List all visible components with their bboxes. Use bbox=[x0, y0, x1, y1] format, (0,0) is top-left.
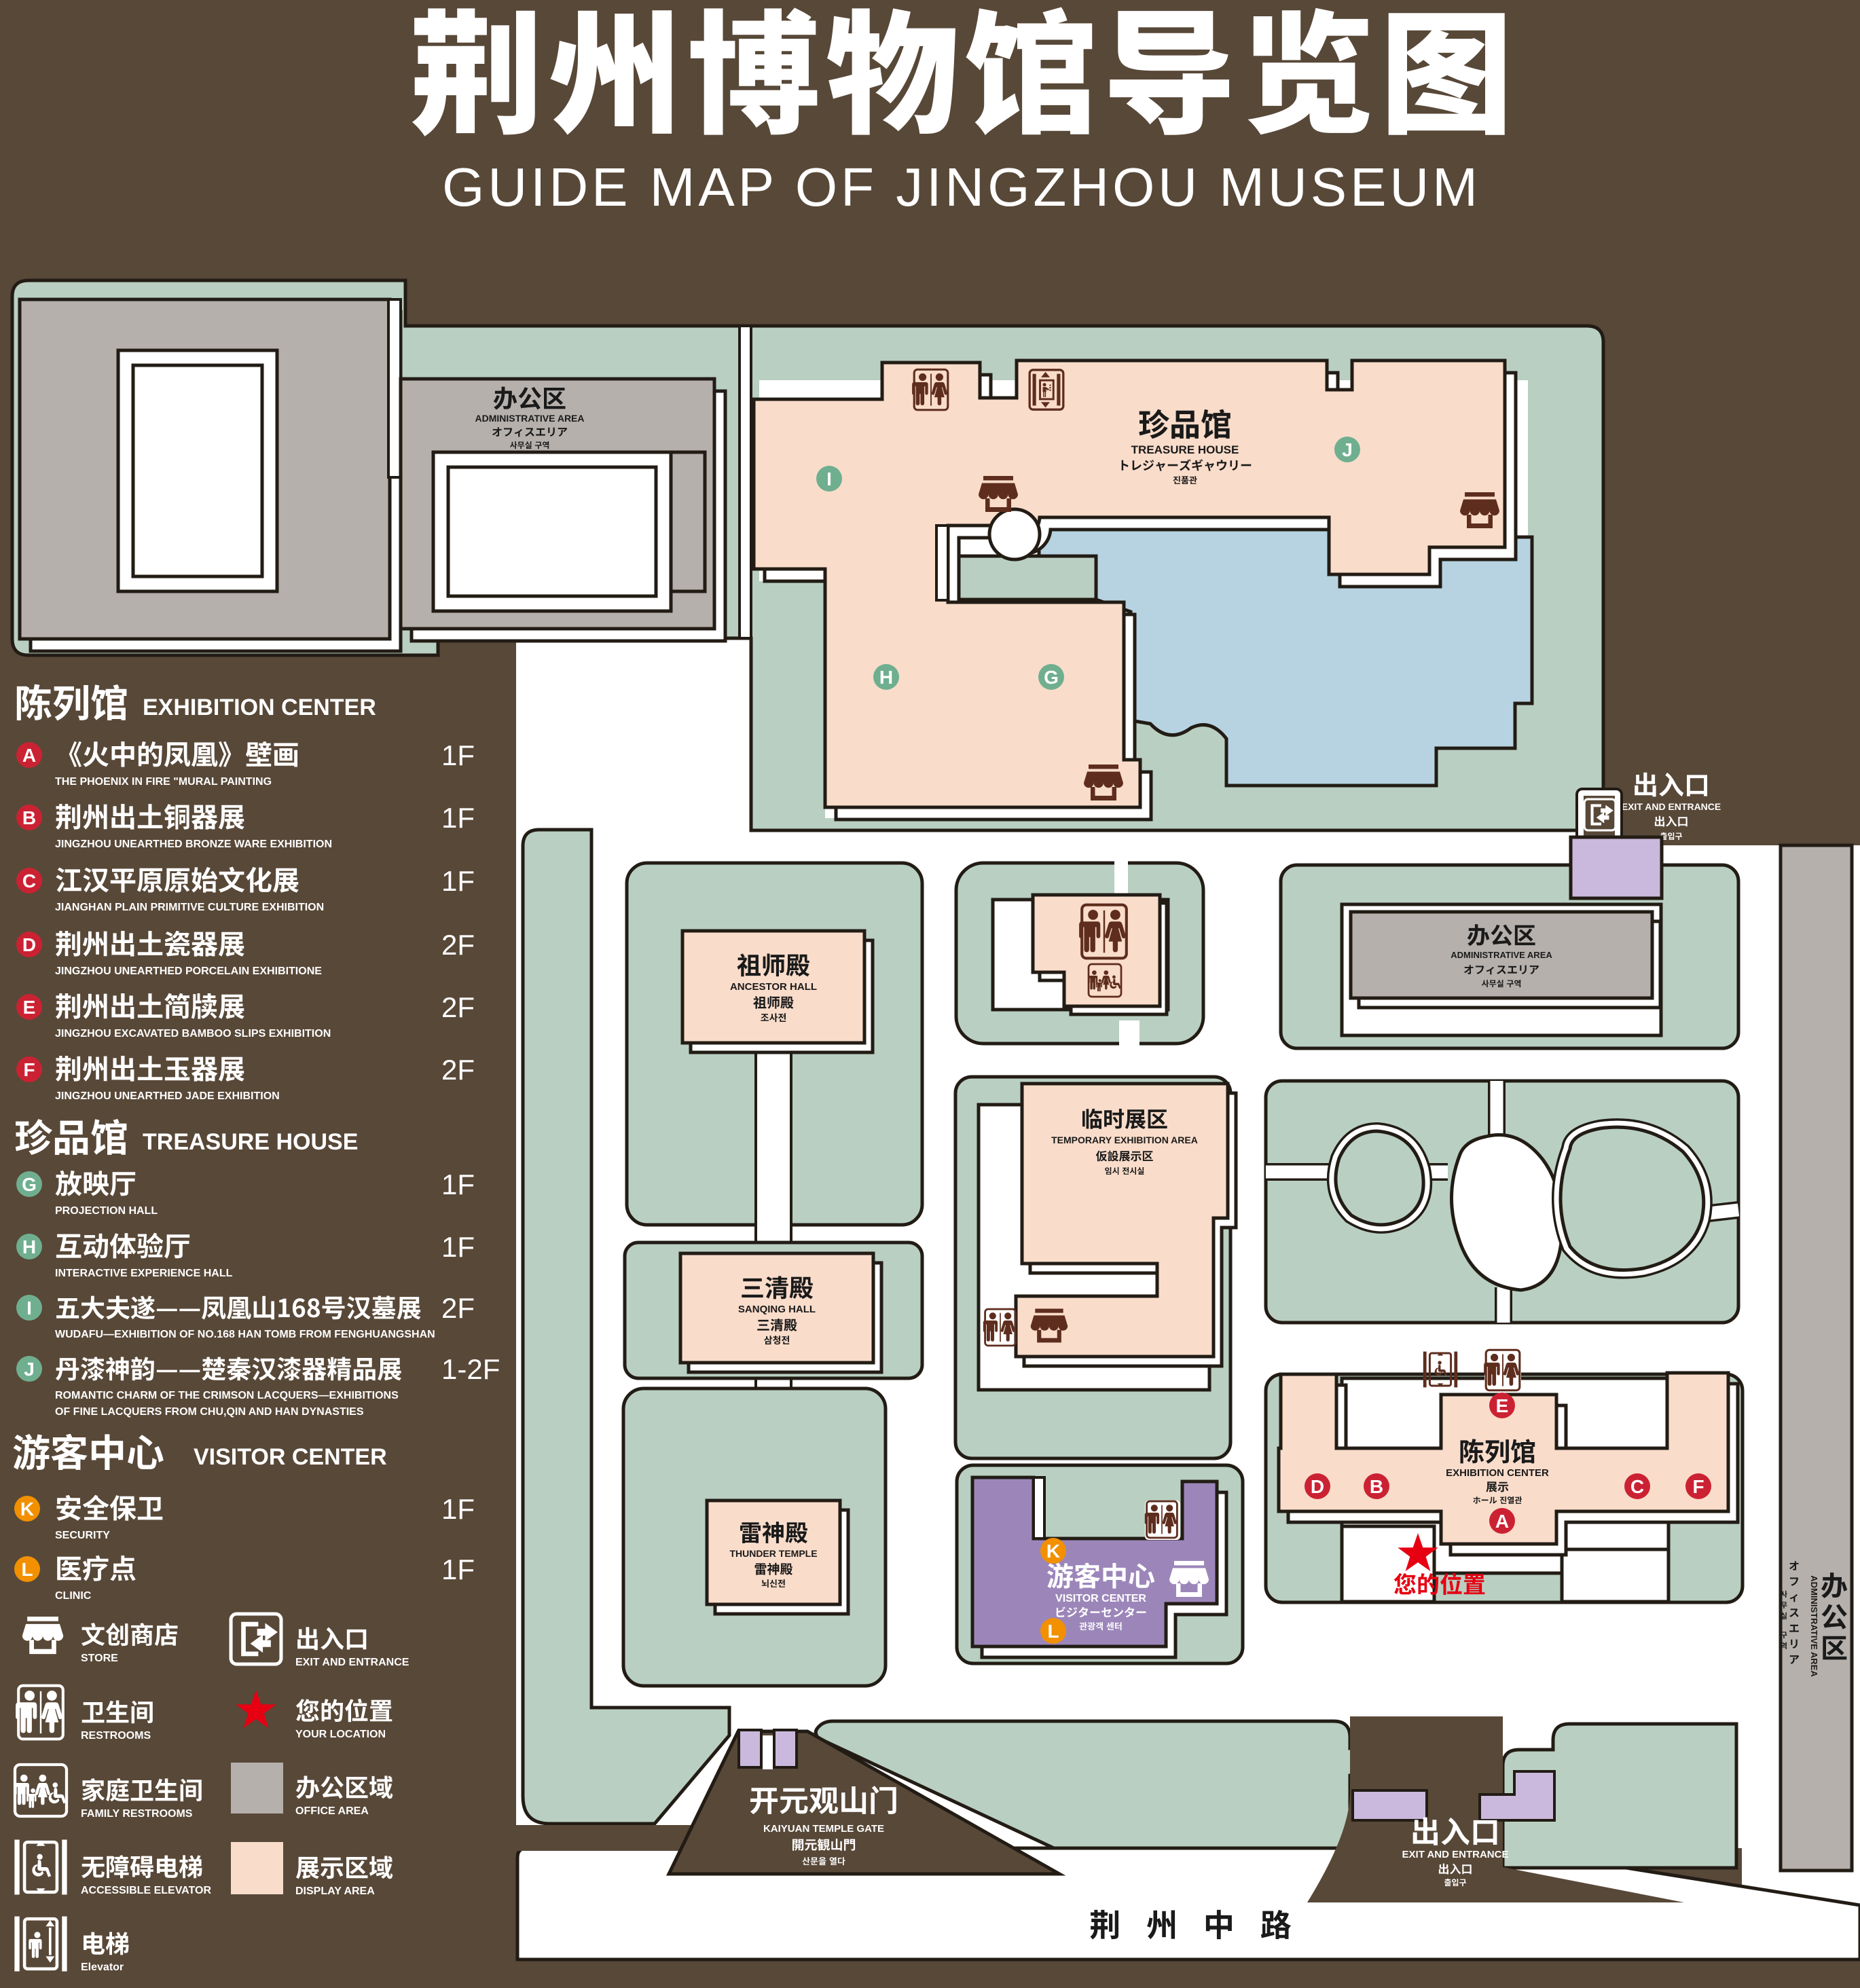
svg-text:1F: 1F bbox=[441, 1168, 475, 1200]
svg-text:TREASURE HOUSE: TREASURE HOUSE bbox=[143, 1129, 358, 1155]
svg-text:STORE: STORE bbox=[81, 1653, 118, 1664]
svg-text:E: E bbox=[23, 997, 36, 1018]
svg-text:GUIDE MAP OF JINGZHOU MUSEUM: GUIDE MAP OF JINGZHOU MUSEUM bbox=[442, 157, 1481, 217]
svg-text:VISITOR CENTER: VISITOR CENTER bbox=[194, 1444, 387, 1470]
svg-text:THE PHOENIX IN FIRE "MURAL PAI: THE PHOENIX IN FIRE "MURAL PAINTING bbox=[55, 776, 272, 788]
svg-text:EXIT AND ENTRANCE: EXIT AND ENTRANCE bbox=[1622, 801, 1721, 812]
svg-text:A: A bbox=[22, 745, 36, 766]
svg-text:F: F bbox=[1692, 1476, 1704, 1497]
svg-text:1F: 1F bbox=[441, 1493, 475, 1525]
svg-text:JINGZHOU UNEARTHED JADE EXHIBI: JINGZHOU UNEARTHED JADE EXHIBITION bbox=[55, 1090, 280, 1102]
svg-text:2F: 2F bbox=[441, 1054, 475, 1086]
svg-text:EXIT AND ENTRANCE: EXIT AND ENTRANCE bbox=[295, 1657, 409, 1668]
svg-text:J: J bbox=[24, 1359, 35, 1380]
svg-text:PROJECTION HALL: PROJECTION HALL bbox=[55, 1205, 158, 1217]
svg-text:L: L bbox=[1047, 1621, 1059, 1642]
svg-text:ROMANTIC CHARM OF THE CRIMSON: ROMANTIC CHARM OF THE CRIMSON LACQUERS—E… bbox=[55, 1390, 399, 1401]
svg-text:I: I bbox=[26, 1297, 32, 1319]
svg-text:ANCESTOR HALL: ANCESTOR HALL bbox=[730, 981, 817, 993]
svg-text:CLINIC: CLINIC bbox=[55, 1590, 92, 1602]
svg-text:1-2F: 1-2F bbox=[441, 1353, 500, 1385]
svg-text:K: K bbox=[1046, 1541, 1060, 1562]
svg-text:JIANGHAN PLAIN PRIMITIVE CULTU: JIANGHAN PLAIN PRIMITIVE CULTURE EXHIBIT… bbox=[55, 902, 324, 913]
svg-text:K: K bbox=[20, 1498, 34, 1520]
svg-text:B: B bbox=[22, 807, 36, 828]
svg-text:ADMINISTRATIVE AREA: ADMINISTRATIVE AREA bbox=[475, 413, 585, 424]
svg-text:DISPLAY AREA: DISPLAY AREA bbox=[295, 1885, 375, 1897]
svg-text:YOUR LOCATION: YOUR LOCATION bbox=[295, 1729, 386, 1740]
svg-text:Elevator: Elevator bbox=[81, 1962, 124, 1973]
svg-text:G: G bbox=[22, 1174, 37, 1195]
svg-text:EXHIBITION CENTER: EXHIBITION CENTER bbox=[143, 695, 376, 720]
svg-text:OF FINE LACQUERS FROM CHU,QIN: OF FINE LACQUERS FROM CHU,QIN AND HAN DY… bbox=[55, 1406, 364, 1418]
svg-text:D: D bbox=[1311, 1476, 1324, 1497]
svg-text:TEMPORARY EXHIBITION AREA: TEMPORARY EXHIBITION AREA bbox=[1051, 1135, 1198, 1145]
svg-text:1F: 1F bbox=[441, 802, 475, 834]
svg-text:E: E bbox=[1496, 1395, 1509, 1416]
svg-text:1F: 1F bbox=[441, 1553, 475, 1585]
svg-text:JINGZHOU UNEARTHED PORCELAIN E: JINGZHOU UNEARTHED PORCELAIN EXHIBITIONE bbox=[55, 965, 322, 977]
svg-text:WUDAFU—EXHIBITION OF NO.168 HA: WUDAFU—EXHIBITION OF NO.168 HAN TOMB FRO… bbox=[55, 1329, 435, 1340]
svg-text:2F: 2F bbox=[441, 1292, 475, 1324]
svg-text:D: D bbox=[22, 934, 36, 955]
svg-text:2F: 2F bbox=[441, 991, 475, 1023]
svg-text:I: I bbox=[826, 468, 832, 490]
svg-text:ADMINISTRATIVE AREA: ADMINISTRATIVE AREA bbox=[1809, 1575, 1819, 1677]
svg-text:THUNDER TEMPLE: THUNDER TEMPLE bbox=[729, 1548, 817, 1559]
svg-text:H: H bbox=[22, 1236, 36, 1257]
svg-text:C: C bbox=[1630, 1476, 1644, 1497]
svg-text:TREASURE HOUSE: TREASURE HOUSE bbox=[1131, 443, 1239, 456]
svg-text:1F: 1F bbox=[441, 1231, 475, 1263]
svg-text:2F: 2F bbox=[441, 929, 475, 961]
svg-text:KAIYUAN TEMPLE GATE: KAIYUAN TEMPLE GATE bbox=[763, 1823, 884, 1835]
svg-text:G: G bbox=[1044, 667, 1059, 688]
svg-text:ADMINISTRATIVE AREA: ADMINISTRATIVE AREA bbox=[1451, 950, 1552, 960]
svg-text:1F: 1F bbox=[441, 865, 475, 897]
svg-text:FAMILY RESTROOMS: FAMILY RESTROOMS bbox=[81, 1808, 193, 1820]
svg-text:L: L bbox=[21, 1559, 33, 1580]
svg-text:INTERACTIVE EXPERIENCE HALL: INTERACTIVE EXPERIENCE HALL bbox=[55, 1268, 233, 1279]
svg-text:F: F bbox=[23, 1059, 35, 1080]
svg-text:ACCESSIBLE ELEVATOR: ACCESSIBLE ELEVATOR bbox=[81, 1885, 211, 1896]
svg-text:1F: 1F bbox=[441, 739, 475, 771]
svg-text:C: C bbox=[22, 870, 36, 891]
svg-text:SECURITY: SECURITY bbox=[55, 1530, 110, 1541]
svg-text:EXIT AND ENTRANCE: EXIT AND ENTRANCE bbox=[1402, 1849, 1509, 1860]
svg-text:OFFICE AREA: OFFICE AREA bbox=[295, 1805, 369, 1817]
svg-text:SANQING HALL: SANQING HALL bbox=[738, 1304, 816, 1315]
svg-text:JINGZHOU EXCAVATED BAMBOO SLIP: JINGZHOU EXCAVATED BAMBOO SLIPS EXHIBITI… bbox=[55, 1028, 331, 1039]
svg-text:B: B bbox=[1370, 1476, 1383, 1497]
svg-text:EXHIBITION CENTER: EXHIBITION CENTER bbox=[1446, 1467, 1549, 1479]
svg-text:A: A bbox=[1495, 1511, 1509, 1532]
svg-text:JINGZHOU UNEARTHED BRONZE WARE: JINGZHOU UNEARTHED BRONZE WARE EXHIBITIO… bbox=[55, 839, 332, 850]
svg-text:J: J bbox=[1342, 439, 1353, 460]
svg-text:RESTROOMS: RESTROOMS bbox=[81, 1730, 151, 1742]
svg-text:VISITOR CENTER: VISITOR CENTER bbox=[1055, 1593, 1146, 1604]
svg-text:H: H bbox=[879, 667, 893, 688]
